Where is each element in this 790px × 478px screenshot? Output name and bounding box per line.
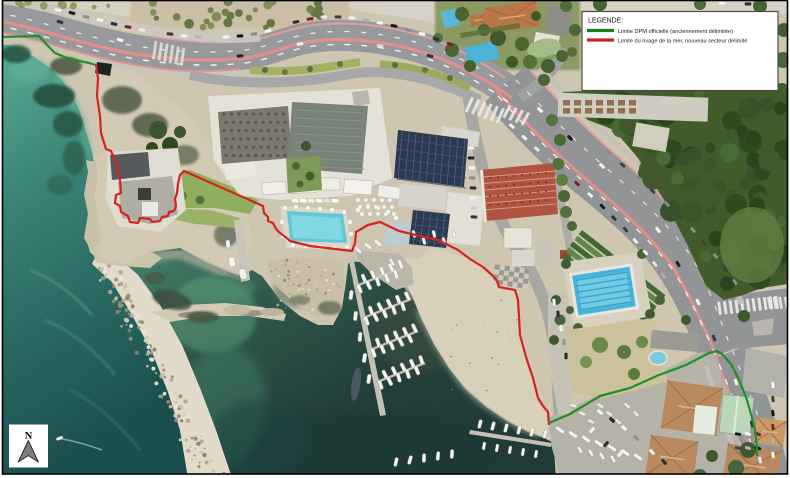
- svg-text:Limite du rivage de la mer, no: Limite du rivage de la mer, nouveau sect…: [618, 38, 747, 44]
- svg-text:LEGENDE:: LEGENDE:: [588, 17, 623, 25]
- svg-text:Limite DPM officielle (ancienn: Limite DPM officielle (anciennement déli…: [618, 29, 733, 35]
